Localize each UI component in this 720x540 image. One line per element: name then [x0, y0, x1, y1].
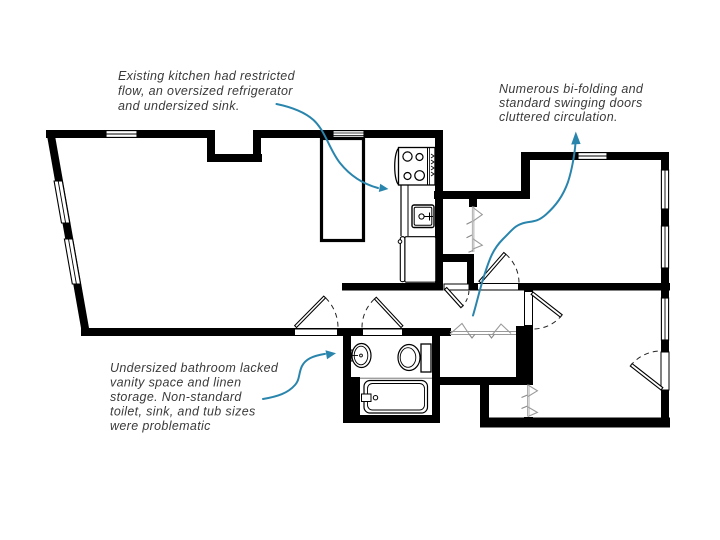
svg-text:were problematic: were problematic [110, 419, 211, 433]
svg-text:Numerous bi-folding and: Numerous bi-folding and [499, 82, 644, 96]
svg-text:and undersized sink.: and undersized sink. [118, 99, 240, 113]
svg-text:flow, an oversized refrigerato: flow, an oversized refrigerator [118, 84, 293, 98]
svg-text:cluttered circulation.: cluttered circulation. [499, 110, 618, 124]
svg-text:vanity space and linen: vanity space and linen [110, 376, 241, 390]
svg-text:Undersized bathroom lacked: Undersized bathroom lacked [110, 361, 279, 375]
svg-text:standard swinging doors: standard swinging doors [499, 96, 643, 110]
svg-text:Existing kitchen had restricte: Existing kitchen had restricted [118, 69, 296, 83]
svg-text:toilet, sink, and tub sizes: toilet, sink, and tub sizes [110, 405, 256, 419]
svg-text:storage. Non-standard: storage. Non-standard [110, 390, 242, 404]
